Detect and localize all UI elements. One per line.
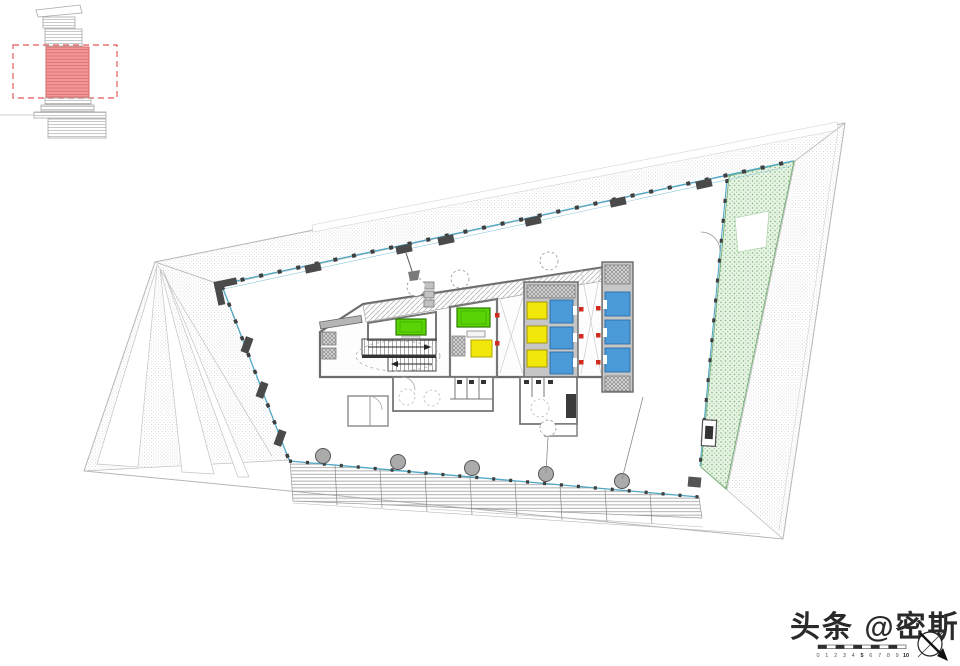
toilet-fixtures: [457, 380, 486, 384]
elevator-cab-blue: [550, 300, 573, 323]
scale-bar-labels: 0 1 2 3 4 5 6 7 8 9 10: [816, 653, 909, 659]
shaft-block: [322, 332, 336, 345]
call-button-marker: [495, 341, 500, 346]
elevator-cab-blue: [605, 320, 630, 344]
shaft-block: [322, 348, 336, 359]
svg-text:1: 1: [825, 653, 828, 659]
elevator-cab-blue: [605, 292, 630, 316]
shaft-block: [605, 376, 630, 391]
shaft-block: [452, 336, 465, 356]
svg-text:3: 3: [843, 653, 846, 659]
elevator-bank-right: [596, 262, 633, 392]
service-lift: [701, 420, 716, 447]
call-button-marker: [495, 313, 500, 318]
service-room: [348, 396, 388, 426]
svg-text:0: 0: [816, 653, 819, 659]
garden-notch: [735, 211, 769, 252]
svg-text:5: 5: [860, 653, 863, 659]
key-floor-band: [43, 17, 75, 28]
elevator-cab-blue: [550, 327, 573, 349]
door-swing-arc: [701, 232, 720, 251]
elevator-cab-yellow: [527, 350, 547, 367]
equipment-yellow-unit: [471, 340, 492, 357]
shaft-block: [605, 265, 630, 284]
svg-text:9: 9: [896, 653, 899, 659]
svg-text:8: 8: [887, 653, 890, 659]
terrace-louvers-bottom: [290, 461, 760, 534]
svg-text:10: 10: [903, 653, 909, 659]
shaft-wall: [566, 394, 576, 418]
equipment-room-large: [450, 299, 500, 377]
elevator-cab-blue: [605, 348, 630, 372]
key-floor-band: [34, 112, 106, 118]
facade-junction-block: [688, 476, 702, 487]
core: [320, 252, 633, 436]
restroom-block-left: [393, 377, 493, 411]
key-floor-band: [45, 29, 82, 46]
key-roof: [36, 5, 82, 17]
facade-core-tie: [406, 253, 420, 281]
elevator-cab-yellow: [527, 326, 547, 343]
svg-text:7: 7: [878, 653, 881, 659]
key-floor-band: [45, 98, 91, 104]
toilet-fixtures: [524, 380, 553, 384]
equipment-green-unit: [396, 319, 426, 335]
shaft-block: [527, 285, 575, 298]
key-highlight-floors: [46, 47, 89, 97]
scale-bar: 0 1 2 3 4 5 6 7 8 9 10: [816, 645, 909, 659]
roof-terrace-left: [84, 262, 289, 477]
key-podium: [48, 119, 106, 138]
svg-text:2: 2: [834, 653, 837, 659]
elevator-cab-yellow: [527, 302, 547, 319]
floor-plan-drawing: 头条 @密斯氮 头条 @密斯氮 0 1 2 3 4 5 6 7 8 9 10: [0, 0, 960, 666]
svg-text:6: 6: [869, 653, 872, 659]
stair-rail: [362, 355, 436, 358]
cabinet-blocks: [424, 282, 434, 307]
floor-plan-sheet: 头条 @密斯氮 头条 @密斯氮 0 1 2 3 4 5 6 7 8 9 10: [0, 0, 960, 666]
elevator-cab-blue: [550, 352, 573, 374]
elevator-bank-left: [524, 282, 584, 391]
key-floor-band: [41, 105, 94, 111]
key-plan: [0, 5, 117, 138]
svg-text:4: 4: [852, 653, 855, 659]
